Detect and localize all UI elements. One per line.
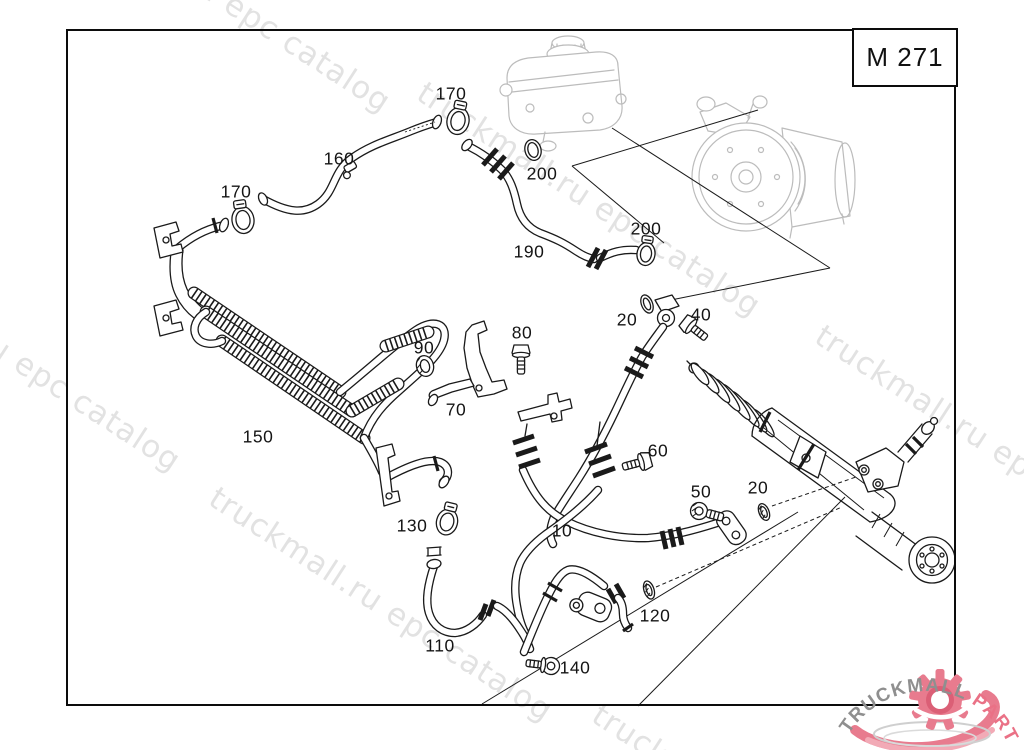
bolt-80 (512, 345, 530, 374)
seal-ring-200 (523, 138, 544, 162)
brand-logo: TRUCKMALL PARTS (820, 628, 1024, 750)
steering-pump-drawing (692, 96, 855, 238)
clamp-170-left (229, 199, 255, 235)
bolt-50 (691, 503, 725, 522)
hose-190-drawing (460, 137, 658, 269)
bolt-60 (620, 451, 653, 476)
seal-ring-20-bottom (756, 502, 772, 522)
hose-160-drawing (229, 99, 473, 235)
clamp-130 (434, 501, 462, 538)
fluid-reservoir-drawing (500, 36, 626, 151)
bolt-140 (525, 655, 560, 676)
model-code: M 271 (866, 42, 943, 73)
seal-ring-20-top (638, 293, 655, 315)
page-canvas: truckmall.ru epc catalogtruckmall.ru epc… (0, 0, 1024, 750)
bolt-40 (678, 313, 712, 345)
clamp-200 (635, 235, 657, 267)
model-code-box: M 271 (852, 28, 958, 87)
clamp-170-top (444, 99, 472, 136)
hose-110-drawing (426, 547, 633, 652)
seal-ring-120 (641, 580, 656, 601)
oil-cooler-drawing (154, 217, 451, 506)
steering-rack-drawing (687, 361, 955, 583)
bracket-70-drawing (427, 321, 507, 407)
